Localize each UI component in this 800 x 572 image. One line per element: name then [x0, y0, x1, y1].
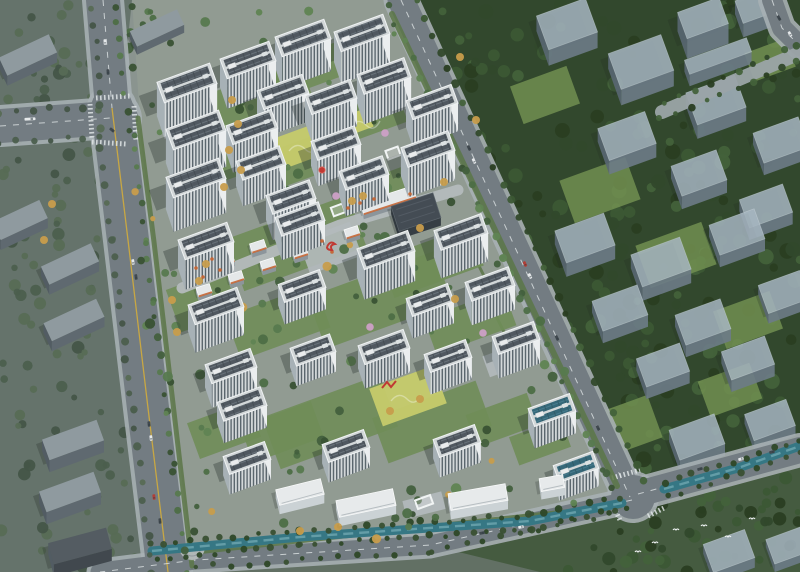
- atmosphere-tint: [0, 0, 800, 572]
- aerial-masterplan-render: [0, 0, 800, 572]
- layer-atmosphere: [0, 0, 800, 572]
- masterplan-svg: [0, 0, 800, 572]
